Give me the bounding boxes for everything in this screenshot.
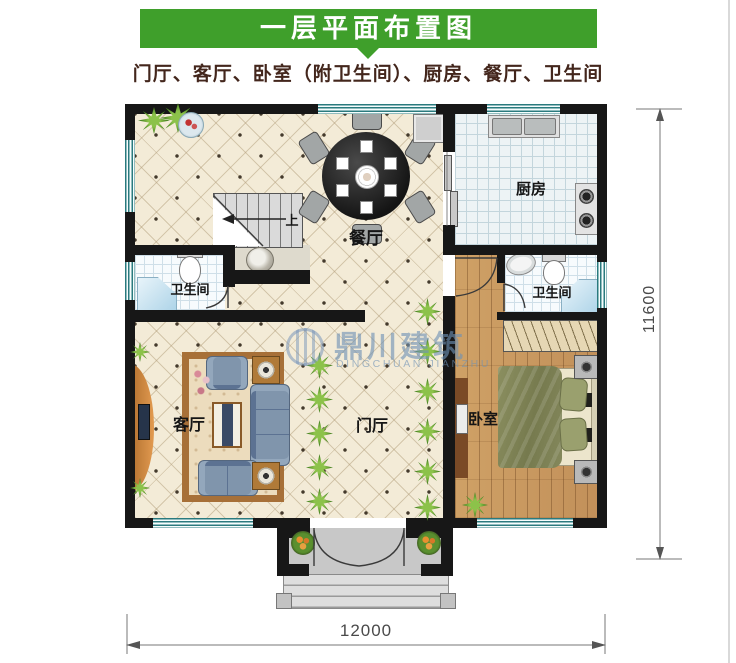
plant	[130, 478, 150, 498]
page-title: 一层平面布置图	[140, 9, 597, 48]
fridge	[413, 114, 444, 143]
potted-plant	[291, 531, 315, 555]
window-bottom-bedroom	[477, 518, 573, 528]
plant	[130, 342, 150, 362]
wall-kitchen-bottom	[443, 245, 607, 255]
side-table-lamp	[252, 356, 280, 384]
pillow	[559, 377, 589, 412]
bed-blanket	[498, 366, 562, 468]
nightstand	[574, 355, 599, 379]
room-list-subtitle: 门厅、客厅、卧室（附卫生间）、厨房、餐厅、卫生间	[0, 59, 736, 86]
wall-alcove-bottom	[223, 270, 310, 284]
label-foyer: 门厅	[348, 412, 396, 436]
flower-table	[178, 112, 204, 138]
step-post-right	[440, 593, 456, 609]
place-setting	[384, 184, 397, 197]
nightstand	[574, 460, 599, 484]
potted-plant	[417, 531, 441, 555]
place-setting	[336, 157, 349, 170]
wall-bath-right-left	[497, 255, 505, 283]
burner	[579, 213, 594, 228]
image-edge	[728, 0, 730, 663]
kitchen-sink	[488, 115, 560, 138]
wall-kitchen-left-upper	[443, 104, 455, 152]
centerpiece	[355, 165, 379, 189]
entry-steps	[283, 574, 449, 609]
floor-plan-page: 一层平面布置图 门厅、客厅、卧室（附卫生间）、厨房、餐厅、卫生间	[0, 0, 736, 663]
label-bath-right: 卫生间	[520, 282, 584, 301]
banner-pointer-icon	[357, 48, 379, 59]
wardrobe	[503, 320, 599, 352]
dining-table	[322, 132, 410, 220]
place-setting	[336, 184, 349, 197]
wall-kitchen-left-lower	[443, 225, 455, 245]
step-post-left	[276, 593, 292, 609]
window-top-dining	[318, 104, 436, 114]
coffee-table	[212, 402, 242, 448]
wall-bath-left-top	[125, 245, 235, 255]
wall-bath-right-bottom	[497, 312, 607, 320]
place-setting	[360, 140, 373, 153]
label-bedroom: 卧室	[464, 408, 502, 429]
watermark-logo-icon	[286, 328, 324, 366]
sliding-door-panel	[450, 191, 458, 227]
window-left-dining	[125, 140, 135, 212]
burner	[579, 189, 594, 204]
side-table-lamp	[252, 462, 280, 490]
window-right-bath	[597, 262, 607, 308]
porch-stub-left	[283, 564, 309, 576]
place-setting	[360, 201, 373, 214]
dimension-width: 12000	[337, 621, 395, 641]
sofa-long	[250, 384, 290, 466]
wall-hall-living	[125, 310, 365, 322]
label-kitchen: 厨房	[502, 178, 560, 199]
label-dining: 餐厅	[333, 224, 399, 249]
sliding-door-panel	[444, 155, 452, 191]
label-living: 客厅	[164, 411, 214, 435]
watermark: 鼎川建筑 DINGCHUAN JIANZHU	[286, 322, 496, 374]
watermark-latin: DINGCHUAN JIANZHU	[336, 358, 491, 370]
window-bottom-living	[153, 518, 253, 528]
pillow	[559, 417, 588, 452]
porch-stub-right	[421, 564, 447, 576]
place-setting	[384, 157, 397, 170]
living-tv	[138, 404, 150, 440]
window-top-kitchen	[487, 104, 560, 114]
label-bath-left: 卫生间	[156, 279, 224, 298]
stove	[575, 183, 599, 235]
dimension-height: 11600	[641, 274, 659, 344]
label-stairs-up: 上	[284, 210, 300, 229]
sofa-small	[198, 460, 258, 496]
window-left-bath	[125, 262, 135, 300]
rug-sprig	[190, 362, 216, 402]
